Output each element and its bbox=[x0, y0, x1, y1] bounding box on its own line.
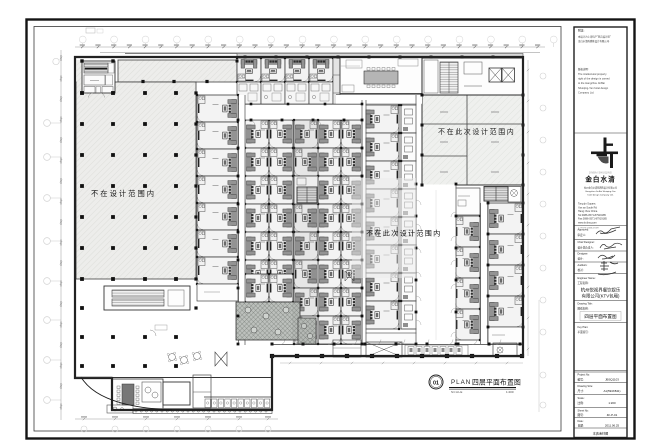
svg-text:Company Ltd.: Company Ltd. bbox=[578, 90, 594, 94]
svg-text:有限公司(KTV包厢): 有限公司(KTV包厢) bbox=[582, 293, 620, 300]
svg-text:比例:: 比例: bbox=[578, 401, 585, 405]
svg-text:不在此次设计范围内: 不在此次设计范围内 bbox=[366, 229, 442, 238]
svg-text:日期:: 日期: bbox=[578, 424, 585, 428]
svg-text:ShuiqIng-Yan hotel design: ShuiqIng-Yan hotel design bbox=[578, 86, 609, 90]
svg-text:Tong jin Square,: Tong jin Square, bbox=[578, 203, 596, 206]
svg-text:不在设计范围内: 不在设计范围内 bbox=[91, 189, 156, 198]
svg-text:Fax:0086-0571-87919185: Fax:0086-0571-87919185 bbox=[578, 218, 607, 221]
svg-text:设计总负责人:: 设计总负责人: bbox=[578, 246, 595, 250]
svg-text:Engineer Name:: Engineer Name: bbox=[578, 277, 596, 280]
svg-text:图纸名称:: 图纸名称: bbox=[578, 307, 589, 311]
svg-text:平面索引:: 平面索引: bbox=[578, 330, 589, 334]
svg-text:JBSQ1103: JBSQ1103 bbox=[605, 378, 619, 382]
svg-text:Scale:: Scale: bbox=[578, 397, 585, 400]
svg-text:Hangzhou JinBai Shuiqing-Yan: Hangzhou JinBai Shuiqing-Yan bbox=[585, 191, 616, 193]
svg-text:校对:: 校对: bbox=[578, 268, 584, 272]
svg-text:本鑫素材图: 本鑫素材图 bbox=[593, 430, 608, 435]
svg-text:Tel:0086-0571-87919185: Tel:0086-0571-87919185 bbox=[578, 214, 606, 217]
svg-text:Hang zhou China: Hang zhou China bbox=[578, 210, 598, 213]
svg-text:本设计为上海均产"陈百设计院": 本设计为上海均产"陈百设计院" bbox=[578, 35, 611, 39]
svg-text:审定人:: 审定人: bbox=[578, 233, 587, 237]
svg-text:Yan an South Rd: Yan an South Rd bbox=[578, 206, 597, 209]
svg-text:设计:: 设计: bbox=[578, 257, 584, 261]
svg-text:四层平面布置图: 四层平面布置图 bbox=[472, 378, 521, 387]
svg-text:不在此次设计范围内: 不在此次设计范围内 bbox=[438, 127, 515, 136]
svg-text:to the Hangzhou JinBai: to the Hangzhou JinBai bbox=[578, 81, 605, 85]
svg-text:Project No:: Project No: bbox=[578, 374, 591, 377]
svg-text:工程名称:: 工程名称: bbox=[578, 281, 589, 285]
svg-text:Auditors:: Auditors: bbox=[578, 264, 588, 267]
svg-text:Drawing Title:: Drawing Title: bbox=[578, 303, 593, 306]
svg-text:SCALE: SCALE bbox=[451, 390, 463, 394]
svg-text:杭州悦视界餐饮娱乐: 杭州悦视界餐饮娱乐 bbox=[581, 287, 621, 294]
svg-text:right of the design is owned: right of the design is owned bbox=[578, 77, 610, 81]
svg-text:Chief Designer:: Chief Designer: bbox=[578, 241, 596, 244]
svg-text:hotel design Company Ltd.: hotel design Company Ltd. bbox=[587, 194, 613, 197]
svg-text:01: 01 bbox=[433, 381, 439, 387]
svg-text:Drawing Size:: Drawing Size: bbox=[578, 385, 594, 388]
svg-text:附注:: 附注: bbox=[578, 29, 585, 33]
svg-text:四层平面布置图: 四层平面布置图 bbox=[584, 313, 617, 320]
svg-text:金白水清: 金白水清 bbox=[584, 175, 615, 184]
svg-text:尺寸:: 尺寸: bbox=[578, 389, 585, 393]
svg-text:图号:: 图号: bbox=[578, 413, 585, 417]
svg-text:A1(594X841): A1(594X841) bbox=[603, 389, 620, 393]
svg-text:2011.06.25: 2011.06.25 bbox=[605, 424, 620, 428]
svg-text:Approved:: Approved: bbox=[578, 229, 590, 232]
svg-text:The intellectural property: The intellectural property bbox=[578, 72, 607, 76]
svg-text:Key Plan:: Key Plan: bbox=[578, 326, 589, 329]
svg-text:版权说明:: 版权说明: bbox=[578, 67, 589, 71]
svg-text:www.lo-jbsq.com: www.lo-jbsq.com bbox=[578, 222, 597, 225]
svg-text:1:200: 1:200 bbox=[608, 401, 616, 405]
svg-text:Designer:: Designer: bbox=[578, 253, 589, 256]
svg-text:编号:: 编号: bbox=[578, 378, 585, 382]
svg-text:JINBAI SHUIQING: JINBAI SHUIQING bbox=[589, 172, 612, 175]
svg-text:4F-P-01: 4F-P-01 bbox=[607, 413, 618, 417]
svg-text:1:200: 1:200 bbox=[506, 390, 514, 394]
svg-text:金白水清陈腾陈设计有限公司.: 金白水清陈腾陈设计有限公司. bbox=[578, 39, 610, 43]
svg-text:PLAN: PLAN bbox=[451, 379, 471, 386]
